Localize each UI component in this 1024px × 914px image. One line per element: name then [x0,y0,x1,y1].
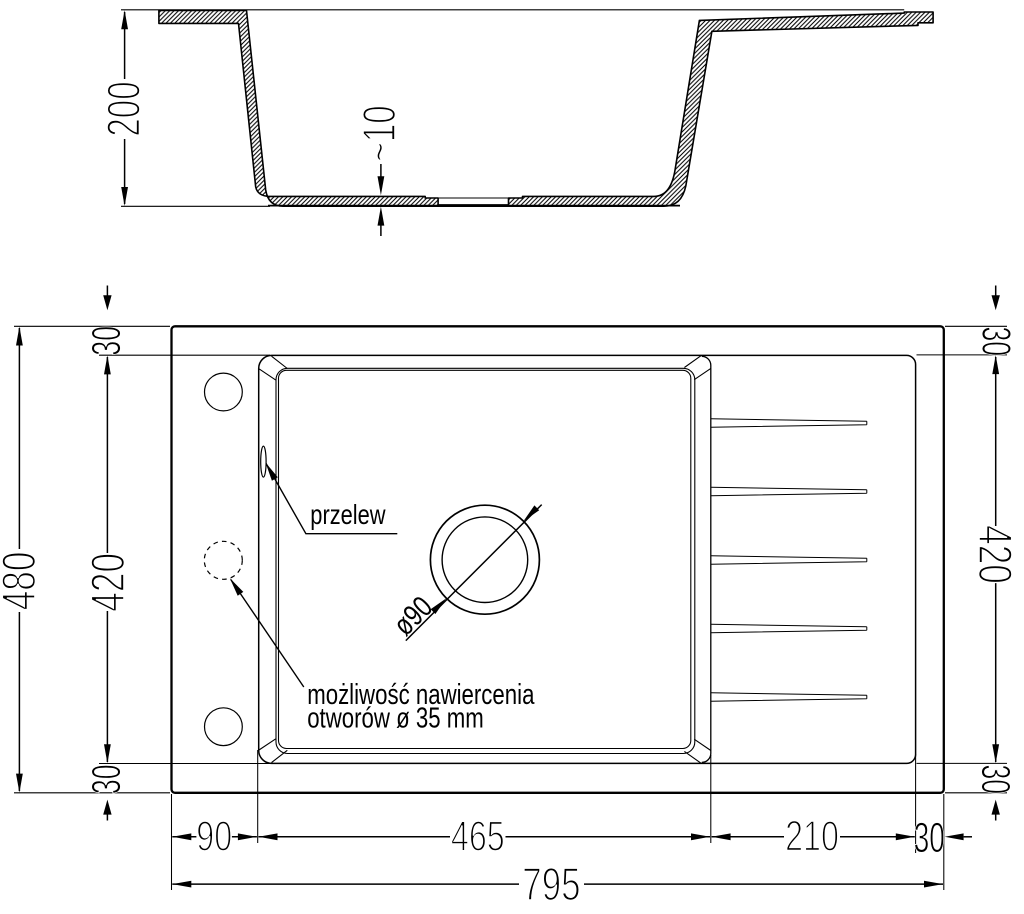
svg-text:210: 210 [785,813,839,861]
svg-text:420: 420 [81,553,134,612]
svg-text:420: 420 [969,525,1022,584]
svg-text:200: 200 [99,81,149,136]
svg-text:30: 30 [85,326,130,356]
svg-text:480: 480 [0,551,45,610]
svg-text:30: 30 [973,326,1018,356]
svg-text:przelew: przelew [310,499,386,530]
svg-text:~10: ~10 [355,105,405,161]
svg-text:795: 795 [522,858,580,910]
svg-text:465: 465 [451,813,505,861]
svg-text:otworów ø 35 mm: otworów ø 35 mm [307,703,484,734]
svg-text:90: 90 [196,813,232,861]
svg-text:30: 30 [85,764,130,794]
svg-text:30: 30 [973,764,1018,794]
svg-text:ø90: ø90 [387,590,439,642]
svg-text:30: 30 [914,813,945,862]
